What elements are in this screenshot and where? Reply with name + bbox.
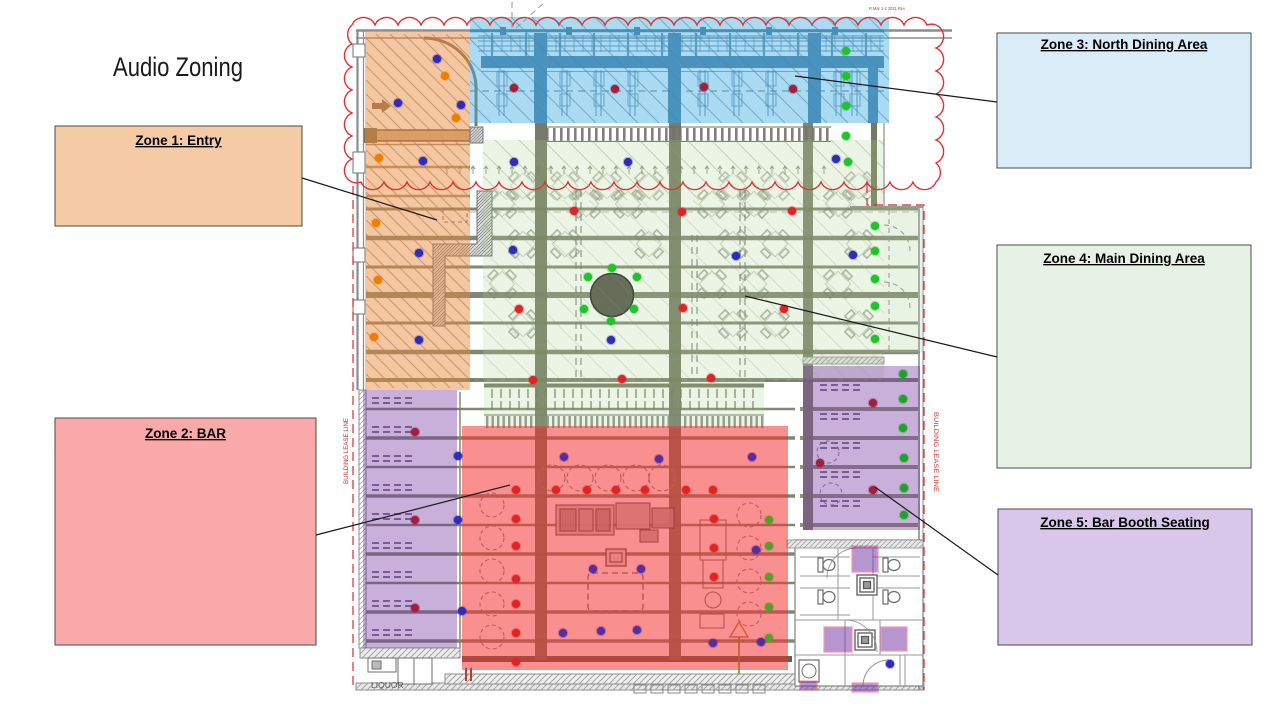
svg-text:R Mar 1-2 2021 Rev: R Mar 1-2 2021 Rev xyxy=(869,6,906,11)
svg-text:Zone 2: BAR: Zone 2: BAR xyxy=(145,426,226,441)
svg-text:LIQUOR: LIQUOR xyxy=(371,680,404,690)
svg-text:Zone 5: Bar Booth Seating: Zone 5: Bar Booth Seating xyxy=(1040,515,1210,530)
svg-text:BUILDING LEASE LINE: BUILDING LEASE LINE xyxy=(932,412,938,492)
svg-text:BUILDING LEASE LINE: BUILDING LEASE LINE xyxy=(344,418,350,484)
svg-text:Audio Zoning: Audio Zoning xyxy=(113,52,243,82)
svg-text:Zone 1: Entry: Zone 1: Entry xyxy=(135,133,222,148)
svg-text:Zone 4: Main Dining Area: Zone 4: Main Dining Area xyxy=(1043,251,1205,266)
svg-text:Zone 3: North Dining Area: Zone 3: North Dining Area xyxy=(1041,37,1208,52)
